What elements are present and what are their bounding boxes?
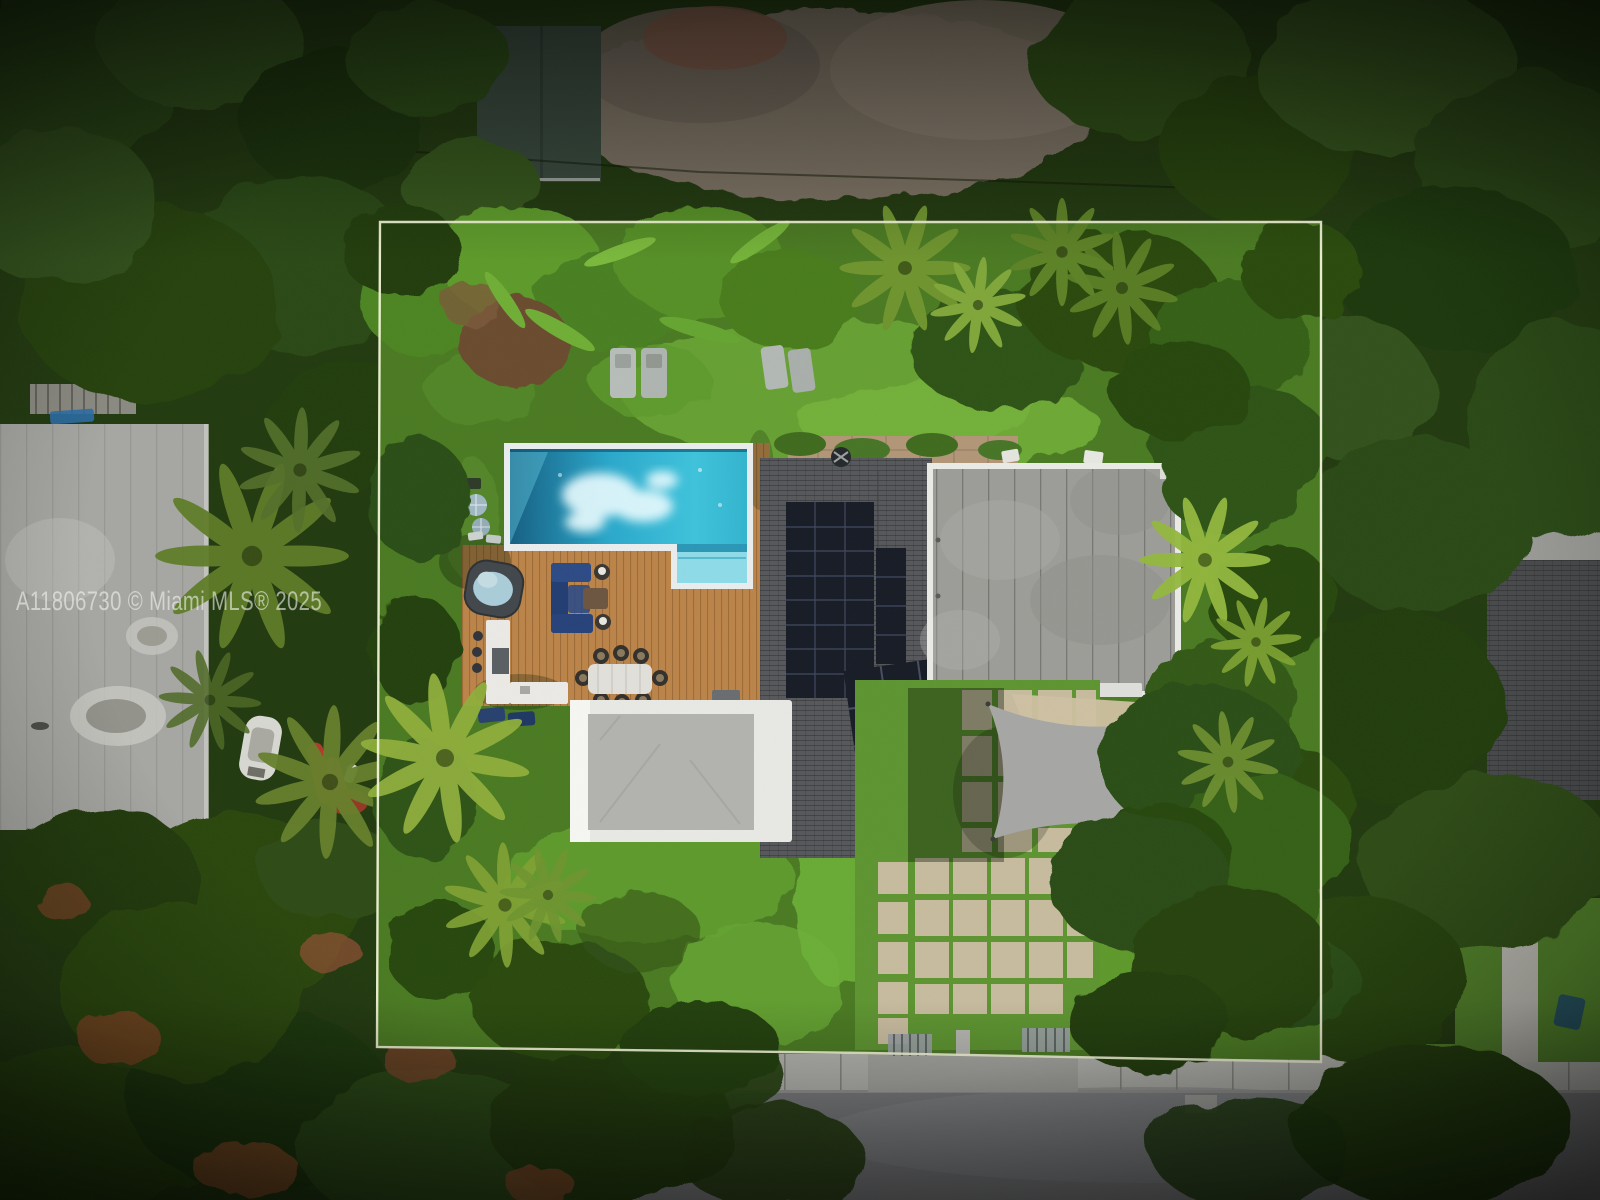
mls-watermark: A11806730 © Miami MLS® 2025 <box>16 586 322 616</box>
aerial-photo: A11806730 © Miami MLS® 2025 <box>0 0 1600 1200</box>
